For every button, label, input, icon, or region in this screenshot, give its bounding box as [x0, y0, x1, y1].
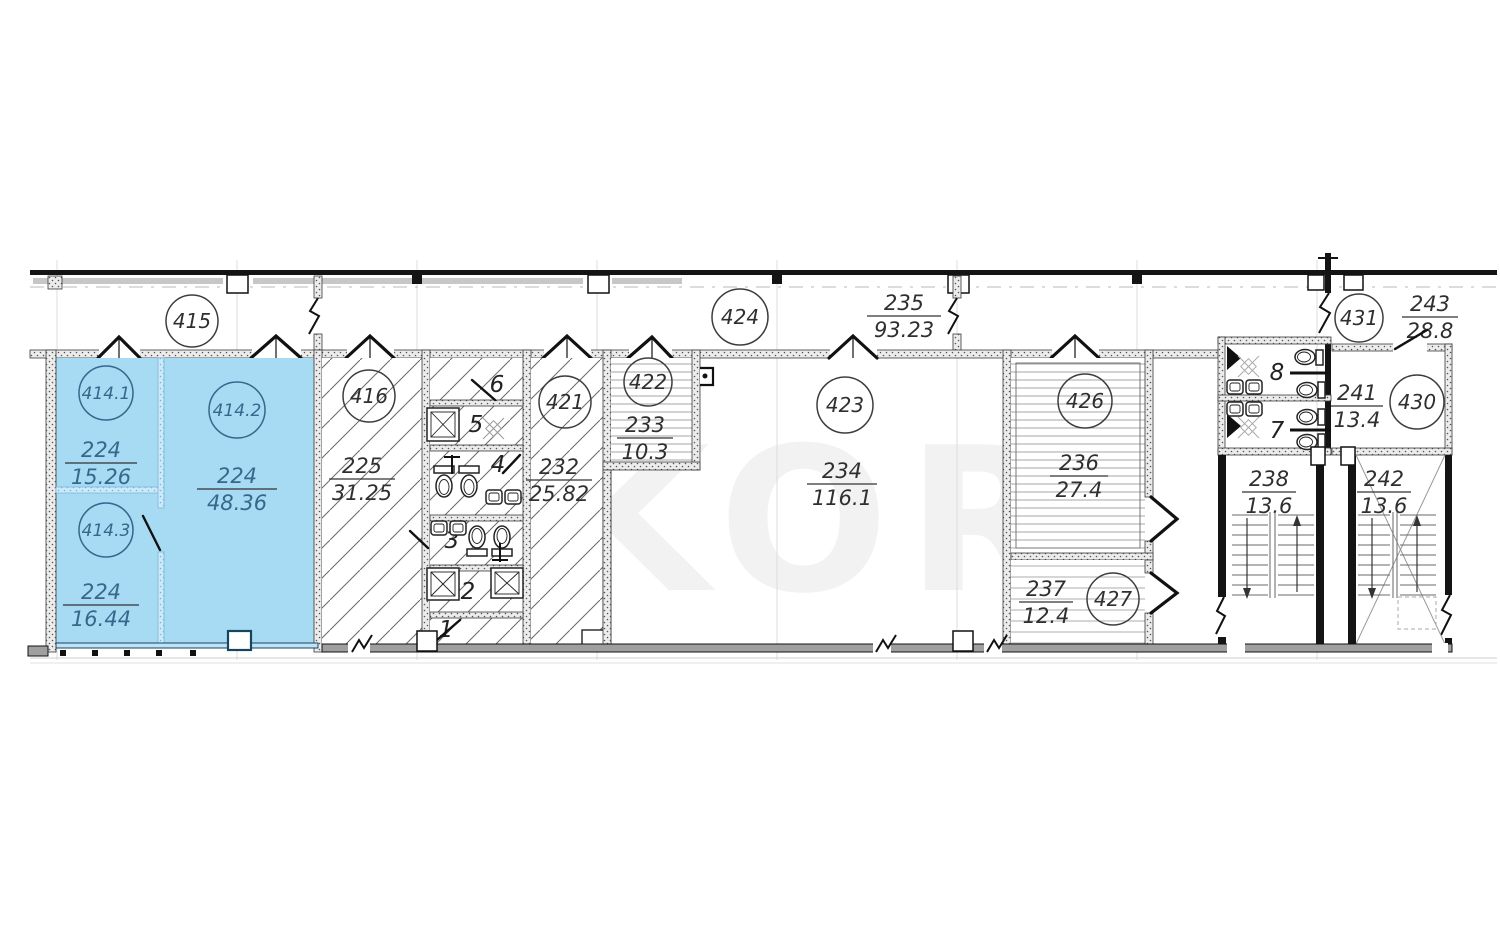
- room-421: 421 232 25.82: [526, 350, 611, 652]
- svg-text:242: 242: [1364, 467, 1404, 491]
- room-tag-414-2: 414.2: [213, 401, 262, 421]
- svg-text:236: 236: [1059, 451, 1099, 475]
- svg-text:235: 235: [884, 291, 924, 315]
- toilet-icon: [467, 526, 487, 556]
- wc-cell-6: 6: [490, 372, 505, 398]
- svg-text:15.26: 15.26: [71, 465, 131, 489]
- room-tag-427: 427: [1094, 587, 1132, 611]
- room-tag-414-3: 414.3: [82, 521, 131, 541]
- room-tag-423: 423: [826, 393, 864, 417]
- svg-text:224: 224: [217, 464, 257, 488]
- facade-column: [228, 631, 251, 650]
- svg-text:224: 224: [81, 580, 121, 604]
- wc-cell-7: 7: [1270, 418, 1285, 444]
- floor-plan-drawing: EKOR: [0, 0, 1500, 950]
- wc-cell-1: 1: [439, 617, 454, 643]
- svg-text:238: 238: [1249, 467, 1289, 491]
- svg-text:225: 225: [342, 454, 382, 478]
- vent-shaft: [427, 408, 459, 441]
- floor-plan-canvas: EKOR: [0, 0, 1500, 950]
- svg-text:234: 234: [822, 459, 862, 483]
- wc-cell-5: 5: [469, 412, 484, 438]
- svg-text:16.44: 16.44: [71, 607, 131, 631]
- svg-text:27.4: 27.4: [1056, 478, 1103, 502]
- room-tag-424: 424: [721, 305, 759, 329]
- svg-text:116.1: 116.1: [812, 486, 872, 510]
- room-tag-416: 416: [350, 384, 388, 408]
- toilet-icon: [1295, 350, 1323, 366]
- svg-text:13.4: 13.4: [1334, 408, 1381, 432]
- floor-drain-icon: [1238, 417, 1259, 438]
- vent-shaft: [491, 568, 523, 598]
- svg-text:13.6: 13.6: [1246, 494, 1293, 518]
- sink-icon: [450, 521, 466, 535]
- sink-icon: [431, 521, 447, 535]
- svg-text:25.82: 25.82: [529, 482, 589, 506]
- svg-text:10.3: 10.3: [622, 440, 669, 464]
- room-tag-414-1: 414.1: [82, 384, 131, 404]
- svg-text:93.23: 93.23: [874, 318, 934, 342]
- svg-text:232: 232: [539, 455, 579, 479]
- svg-text:243: 243: [1410, 292, 1450, 316]
- sink-icon: [1227, 402, 1243, 416]
- floor-drain-icon: [483, 418, 504, 439]
- rooms-top-wall: [30, 349, 1218, 359]
- svg-text:241: 241: [1337, 381, 1377, 405]
- unit-414-highlighted: 414.1 414.2 414.3 224 15.26 224 48.36 22…: [46, 350, 322, 656]
- sink-icon: [1227, 380, 1243, 394]
- room-tag-421: 421: [546, 390, 584, 414]
- room-tag-422: 422: [629, 370, 667, 394]
- svg-text:12.4: 12.4: [1023, 604, 1070, 628]
- toilet-icon: [1297, 409, 1325, 425]
- room-tag-426: 426: [1066, 389, 1104, 413]
- svg-text:237: 237: [1026, 577, 1067, 601]
- floor-drain-icon: [1238, 356, 1259, 377]
- sink-icon: [486, 490, 502, 504]
- sink-icon: [505, 490, 521, 504]
- wc-cell-8: 8: [1270, 360, 1285, 386]
- svg-text:13.6: 13.6: [1361, 494, 1408, 518]
- sink-icon: [1246, 402, 1262, 416]
- svg-text:28.8: 28.8: [1407, 319, 1454, 343]
- room-tag-415: 415: [173, 309, 211, 333]
- toilet-icon: [1297, 382, 1325, 398]
- room-tag-430: 430: [1398, 390, 1436, 414]
- svg-text:224: 224: [81, 438, 121, 462]
- room-422: 422 233 10.3: [603, 350, 713, 470]
- svg-text:233: 233: [625, 413, 665, 437]
- toilet-icon: [459, 466, 479, 497]
- vent-shaft: [427, 568, 459, 600]
- sink-icon: [1246, 380, 1262, 394]
- room-tag-431: 431: [1340, 306, 1378, 330]
- toilet-icon: [492, 526, 512, 556]
- room-416: 416 225 31.25: [322, 350, 430, 652]
- svg-text:48.36: 48.36: [207, 491, 267, 515]
- svg-text:31.25: 31.25: [332, 481, 392, 505]
- wc-cell-2: 2: [461, 579, 476, 605]
